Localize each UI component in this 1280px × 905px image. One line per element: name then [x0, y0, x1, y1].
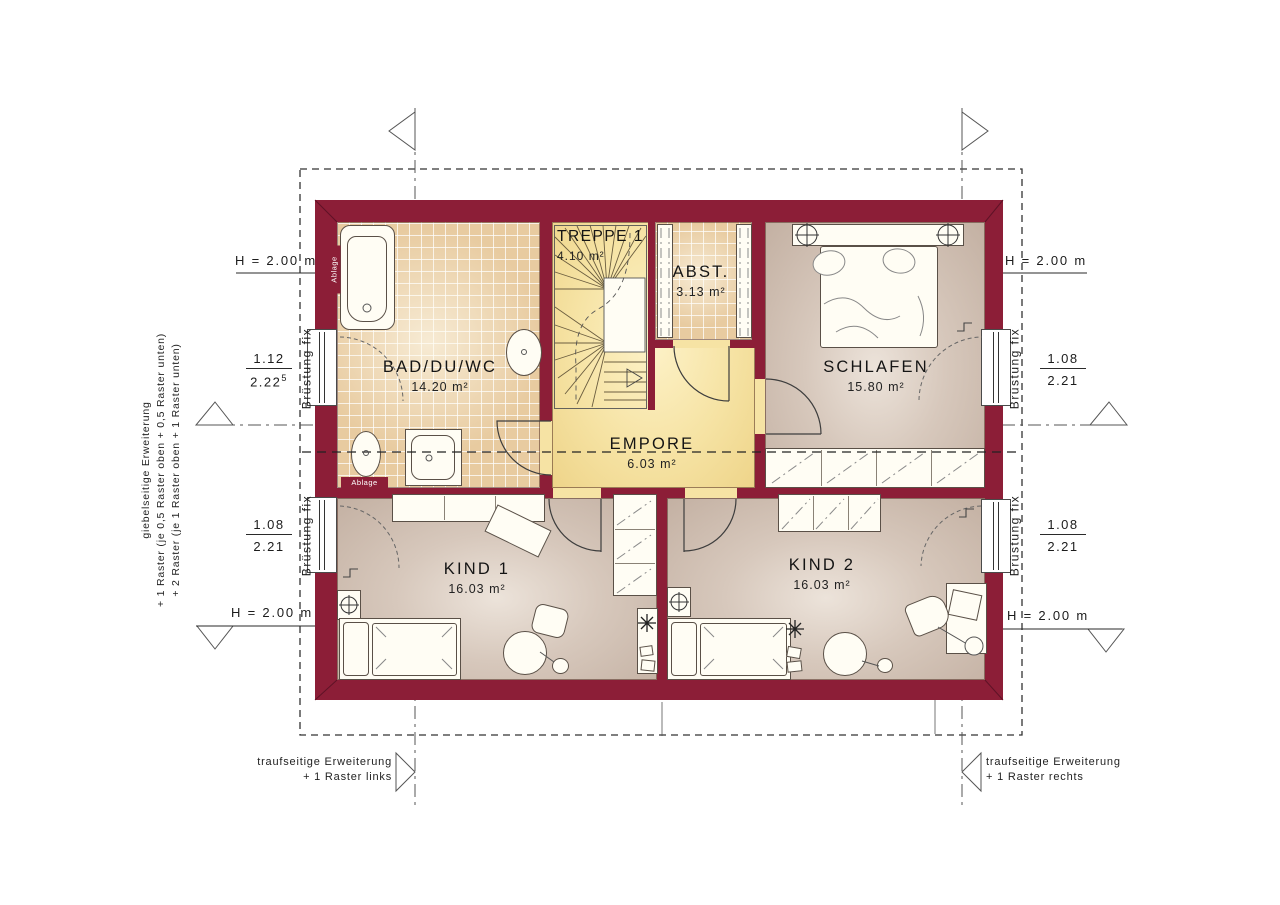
small-box — [639, 645, 653, 657]
double-bed — [820, 246, 938, 348]
eaves-left-line2: + 1 Raster links — [250, 770, 392, 785]
room-label-schlafen: SCHLAFEN 15.80 m² — [806, 358, 946, 394]
room-label-kind2: KIND 2 16.03 m² — [762, 556, 882, 592]
small-box — [786, 660, 802, 673]
room-area: 16.03 m² — [418, 582, 536, 596]
floorplan-canvas: Ablage Ablage — [0, 0, 1280, 905]
window-glazing — [319, 332, 325, 403]
shelf-label: Ablage — [341, 477, 388, 489]
small-box — [786, 646, 802, 659]
wardrobe-divider — [615, 563, 655, 564]
room-name: SCHLAFEN — [806, 358, 946, 377]
room-name: BAD/DU/WC — [372, 358, 508, 377]
shower-tray-inner — [411, 435, 455, 480]
window-dim-right-top-den: 2.21 — [1040, 373, 1086, 388]
room-name: EMPORE — [596, 435, 708, 454]
superscript: 5 — [281, 373, 288, 383]
room-area: 3.13 m² — [661, 285, 741, 299]
wall-abst-bottom-left — [655, 340, 673, 348]
room-area: 4.10 m² — [557, 249, 649, 263]
chair-kind1 — [503, 631, 547, 675]
eaves-right-line2: + 1 Raster rechts — [986, 770, 1146, 785]
wardrobe-divider — [615, 529, 655, 530]
height-dim-top-left: H = 2.00 m — [234, 253, 318, 268]
eaves-extension-note-left: traufseitige Erweiterung + 1 Raster link… — [250, 755, 392, 785]
room-name: KIND 1 — [418, 560, 536, 579]
window-dim-right-top-num: 1.08 — [1040, 351, 1086, 369]
window-dim-left-top-den: 2.225 — [246, 373, 292, 389]
wardrobe-kind2 — [778, 494, 881, 532]
mattress-kind1 — [372, 623, 457, 676]
window-glazing — [993, 502, 999, 570]
eaves-right-line1: traufseitige Erweiterung — [986, 755, 1146, 770]
stool-kind2 — [877, 658, 893, 673]
wardrobe-divider — [876, 450, 877, 486]
room-area: 16.03 m² — [762, 578, 882, 592]
door-opening-bad — [540, 421, 552, 475]
gable-note-line1: giebelseitige Erweiterung — [139, 255, 154, 685]
window-schlafen — [981, 329, 1011, 406]
window-kind2 — [981, 499, 1011, 573]
wall-abst-bottom-right — [730, 340, 755, 348]
shelf-label-vertical: Ablage — [328, 246, 341, 294]
nightstand-kind1 — [337, 590, 361, 620]
height-dim-bottom-right: H = 2.00 m — [1006, 608, 1090, 623]
gable-note-line3: + 2 Raster (je 1 Raster oben + 1 Raster … — [169, 255, 184, 685]
mattress-kind2 — [700, 623, 787, 676]
sideboard-divider — [444, 496, 445, 520]
window-dim-right-bottom-den: 2.21 — [1040, 539, 1086, 554]
window-dim-left-bottom-den: 2.21 — [246, 539, 292, 554]
height-dim-top-right: H = 2.00 m — [1004, 253, 1088, 268]
gable-note-line2: + 1 Raster (je 0,5 Raster oben + 0,5 Ras… — [154, 255, 169, 685]
eaves-left-line1: traufseitige Erweiterung — [250, 755, 392, 770]
door-opening-kind1 — [553, 488, 601, 498]
wall-stair-abst — [648, 222, 655, 410]
bruestung-label-right-bottom: Brüstung fix — [1008, 494, 1021, 578]
window-dim-left-top-num: 1.12 — [246, 351, 292, 369]
gable-extension-note: giebelseitige Erweiterung + 1 Raster (je… — [139, 255, 187, 685]
window-dim-left-bottom-num: 1.08 — [246, 517, 292, 535]
room-label-abst: ABST. 3.13 m² — [661, 263, 741, 299]
stool-kind1 — [552, 658, 569, 674]
room-area: 15.80 m² — [806, 380, 946, 394]
bruestung-label-right-top: Brüstung fix — [1008, 327, 1021, 411]
toilet — [351, 431, 381, 477]
nightstand-kind2 — [667, 587, 691, 617]
small-box — [640, 659, 655, 671]
wardrobe-divider — [813, 496, 814, 530]
pillow-kind2 — [671, 622, 697, 676]
room-name: ABST. — [661, 263, 741, 282]
door-opening-kind2 — [685, 488, 737, 498]
room-label-kind1: KIND 1 16.03 m² — [418, 560, 536, 596]
room-area: 14.20 m² — [372, 380, 508, 394]
door-opening-schlafen — [755, 379, 765, 434]
eaves-extension-note-right: traufseitige Erweiterung + 1 Raster rech… — [986, 755, 1146, 785]
window-glazing — [319, 500, 325, 570]
room-area: 6.03 m² — [596, 457, 708, 471]
wardrobe-schlafen — [765, 448, 985, 488]
window-dim-right-bottom-num: 1.08 — [1040, 517, 1086, 535]
room-name: KIND 2 — [762, 556, 882, 575]
room-name: TREPPE 1 — [557, 228, 649, 246]
headboard-shelf — [792, 224, 964, 246]
room-label-empore: EMPORE 6.03 m² — [596, 435, 708, 471]
room-label-bad: BAD/DU/WC 14.20 m² — [372, 358, 508, 394]
height-dim-bottom-left: H = 2.00 m — [230, 605, 314, 620]
wardrobe-divider — [821, 450, 822, 486]
door-opening-abst — [673, 340, 730, 348]
bathtub-inner — [347, 236, 387, 322]
wall-abst-schlafen — [752, 222, 755, 342]
chair-kind2 — [823, 632, 867, 676]
wardrobe-divider — [848, 496, 849, 530]
pillow-kind1 — [343, 622, 369, 676]
wardrobe-kind1 — [613, 494, 657, 596]
sink — [506, 329, 542, 376]
window-glazing — [993, 332, 999, 403]
bruestung-label-left-top: Brüstung fix — [300, 327, 313, 411]
room-label-treppe: TREPPE 1 4.10 m² — [557, 228, 649, 263]
bruestung-label-left-bottom: Brüstung fix — [300, 494, 313, 578]
wardrobe-divider — [931, 450, 932, 486]
